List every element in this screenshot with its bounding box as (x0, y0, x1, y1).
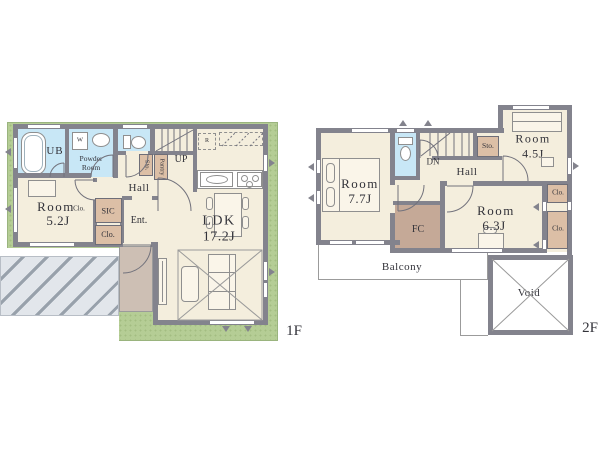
label-fridge: R (205, 138, 209, 144)
toilet-tank-1f (123, 135, 131, 149)
floor-plan-canvas: UB W Powder Room Hall UP R Sto. Pantry S… (0, 0, 600, 449)
label-ent: Ent. (131, 216, 147, 227)
label-ldk-size: 17.2J (203, 231, 235, 246)
label-void: Void (518, 288, 541, 300)
desk-6-3 (478, 233, 504, 249)
label-bedroom2-name: Room (515, 133, 550, 146)
dresser (28, 180, 56, 197)
dining-chair (206, 197, 213, 210)
label-pantry: Pantry (158, 159, 165, 176)
label-bedroom-1f-name: Room (37, 200, 75, 214)
label-closet-upper: Clo. (552, 189, 564, 196)
label-bedroom3-name: Room (477, 204, 515, 218)
toilet-tank-2f (398, 137, 413, 145)
label-storage-1f: Sto. (143, 160, 150, 170)
label-bedroom-1f-size: 5.2J (46, 214, 69, 228)
bed-line (339, 158, 340, 212)
label-bedroom1-name: Room (341, 177, 379, 191)
label-balcony: Balcony (382, 262, 422, 274)
dining-chair (242, 197, 249, 210)
toilet-bowl-1f (131, 136, 146, 149)
label-closet-1f: Clo. (101, 231, 115, 239)
label-floor-1f: 1F (286, 324, 302, 340)
label-bedroom1-size: 7.7J (348, 192, 371, 206)
label-hall-1f: Hall (129, 183, 150, 195)
label-hall-2f: Hall (457, 167, 478, 179)
coffee-table (181, 266, 199, 302)
label-fc: FC (412, 225, 424, 236)
stove-burner (246, 181, 253, 188)
label-powder-room: Powder Room (71, 154, 111, 172)
label-dn: DN (427, 157, 440, 166)
label-floor-2f: 2F (582, 321, 598, 337)
pillow (326, 187, 335, 207)
label-washer: W (77, 138, 83, 145)
roof-outline (460, 280, 488, 336)
bathtub-inner (24, 135, 43, 172)
entrance-porch (119, 246, 153, 312)
desk-4-5 (512, 112, 562, 132)
stove-burner (252, 175, 259, 182)
label-bedroom2-size: 4.5J (522, 148, 544, 161)
label-sic: SIC (101, 207, 114, 216)
label-ldk-name: LDK (202, 215, 235, 230)
label-ub: UB (46, 146, 63, 158)
powder-sink (92, 133, 110, 147)
pillow (326, 163, 335, 183)
toilet-bowl-2f (400, 146, 411, 161)
driveway (0, 256, 119, 316)
label-bedroom3-size: 6.3J (482, 219, 505, 233)
sink-basin (206, 175, 228, 184)
label-up: UP (175, 155, 188, 166)
sofa (208, 254, 236, 310)
cupboard-space (219, 132, 263, 146)
tv-board-line (162, 261, 163, 302)
dining-chair (242, 216, 249, 229)
label-storage-2f: Sto. (482, 142, 494, 150)
label-closet-lower: Clo. (552, 225, 564, 232)
